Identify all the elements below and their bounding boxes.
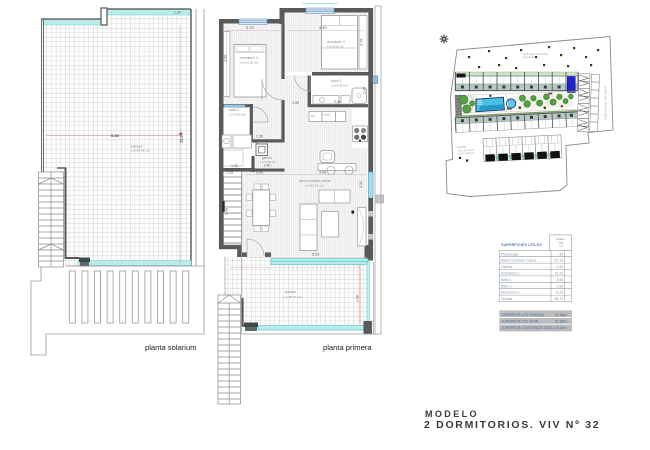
svg-text:22.10: 22.10 — [555, 259, 564, 263]
svg-text:sup.: sup. — [559, 242, 564, 245]
svg-text:m²: m² — [560, 245, 563, 248]
svg-text:salón-comedor-cocina: salón-comedor-cocina — [299, 179, 331, 183]
svg-text:SUPERFICIES UTILES: SUPERFICIES UTILES — [501, 242, 542, 247]
svg-text:3.60: 3.60 — [556, 278, 563, 282]
svg-text:Cuadro: Cuadro — [556, 237, 565, 241]
svg-text:s.u=63.96 m2: s.u=63.96 m2 — [131, 149, 150, 153]
svg-text:6.40: 6.40 — [111, 133, 120, 138]
svg-text:9.20: 9.20 — [556, 291, 563, 295]
svg-text:terraza: terraza — [285, 290, 296, 294]
svg-text:52.55m²: 52.55m² — [555, 313, 567, 317]
svg-text:Baño 1: Baño 1 — [501, 278, 512, 282]
svg-text:11.20: 11.20 — [555, 272, 563, 276]
svg-text:1.24: 1.24 — [174, 11, 181, 15]
svg-text:2.98: 2.98 — [356, 295, 360, 302]
svg-text:s.u=38.70 m2: s.u=38.70 m2 — [283, 295, 302, 299]
svg-text:SUPERFICIE CONSTRUIDA TOTAL: SUPERFICIE CONSTRUIDA TOTAL — [502, 326, 554, 330]
svg-text:5.25: 5.25 — [312, 253, 319, 257]
svg-text:3.34: 3.34 — [359, 181, 363, 188]
svg-text:dormitorio 2: dormitorio 2 — [327, 40, 345, 44]
svg-text:Dormitorio 1: Dormitorio 1 — [501, 272, 520, 276]
svg-text:dormitorio 1: dormitorio 1 — [240, 56, 258, 60]
svg-text:horno: horno — [324, 114, 331, 117]
svg-text:s.u=3.60 m2: s.u=3.60 m2 — [229, 113, 246, 117]
svg-text:1.90: 1.90 — [292, 101, 299, 105]
svg-text:3.90: 3.90 — [319, 171, 326, 175]
svg-text:leyenda: leyenda — [457, 145, 466, 148]
svg-text:SUPERFICIE UTIL TOTAL: SUPERFICIE UTIL TOTAL — [502, 320, 540, 324]
svg-text:Dormitorio 2: Dormitorio 2 — [501, 291, 520, 295]
svg-text:s.u=3.95 m2: s.u=3.95 m2 — [331, 84, 348, 88]
svg-text:Baño 2: Baño 2 — [501, 284, 512, 288]
svg-text:91.25m²: 91.25m² — [555, 320, 567, 324]
svg-text:3.50: 3.50 — [224, 55, 228, 62]
svg-text:1.30: 1.30 — [231, 164, 238, 168]
svg-text:110.42m²: 110.42m² — [554, 326, 567, 330]
svg-text:Galería: Galería — [501, 265, 512, 269]
svg-text:38.70: 38.70 — [555, 297, 564, 301]
svg-text:s.u=22.10 m2: s.u=22.10 m2 — [305, 184, 324, 188]
svg-text:2.76: 2.76 — [360, 39, 364, 46]
svg-text:5.05: 5.05 — [256, 171, 263, 175]
svg-text:40: 40 — [559, 252, 563, 256]
svg-text:1.40: 1.40 — [264, 164, 271, 168]
svg-text:1.45: 1.45 — [363, 87, 367, 94]
svg-text:Salón Comedor Cocina: Salón Comedor Cocina — [501, 259, 536, 263]
svg-text:2.55: 2.55 — [226, 171, 233, 175]
svg-text:planta solarium: planta solarium — [145, 343, 197, 352]
svg-text:Terraza: Terraza — [501, 297, 512, 301]
svg-text:2.50: 2.50 — [334, 100, 341, 104]
svg-text:s.u=11.20 m2: s.u=11.20 m2 — [240, 61, 258, 65]
svg-text:1.50: 1.50 — [556, 265, 563, 269]
svg-text:AVDA. DE LAS SALINAS: AVDA. DE LAS SALINAS — [604, 86, 608, 120]
svg-text:3.95: 3.95 — [556, 284, 563, 288]
svg-text:SUPERFICIE UTIL VIVIENDA: SUPERFICIE UTIL VIVIENDA — [502, 313, 545, 317]
svg-text:2.70: 2.70 — [246, 25, 255, 30]
svg-text:MODELO: MODELO — [425, 409, 479, 419]
svg-text:3.40: 3.40 — [319, 25, 328, 30]
svg-text:Planta baja: Planta baja — [501, 252, 518, 256]
svg-text:1.30: 1.30 — [256, 135, 263, 139]
svg-text:2 DORMITORIOS. VIV Nº 32: 2 DORMITORIOS. VIV Nº 32 — [424, 419, 600, 431]
svg-text:s.u=9.20 m2: s.u=9.20 m2 — [327, 45, 344, 49]
svg-text:frig: frig — [311, 114, 315, 118]
svg-text:planta primera: planta primera — [323, 343, 372, 352]
svg-text:uso privado: uso privado — [523, 56, 536, 59]
svg-text:3.48: 3.48 — [225, 208, 229, 215]
svg-text:baño 2: baño 2 — [331, 79, 341, 83]
svg-text:12.24: 12.24 — [179, 132, 184, 143]
svg-text:baño 1: baño 1 — [229, 108, 239, 112]
